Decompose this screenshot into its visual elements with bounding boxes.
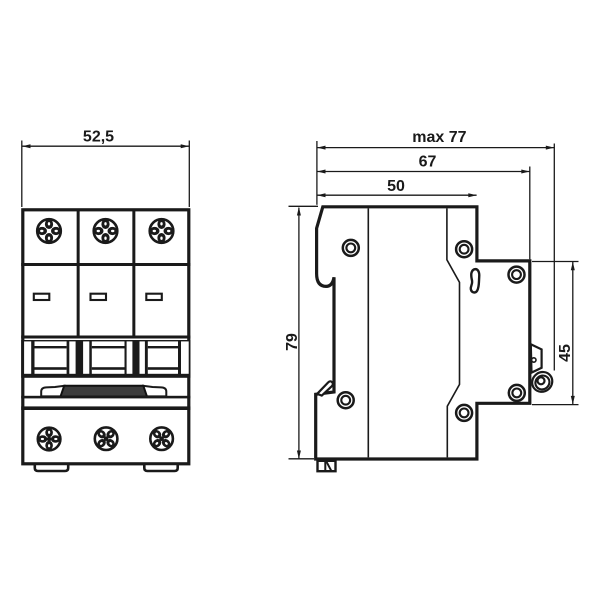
svg-text:67: 67 <box>419 154 437 171</box>
svg-text:50: 50 <box>387 178 405 195</box>
svg-text:52,5: 52,5 <box>83 129 114 146</box>
svg-text:79: 79 <box>284 333 301 351</box>
svg-text:max 77: max 77 <box>412 129 466 146</box>
svg-text:45: 45 <box>557 344 574 362</box>
